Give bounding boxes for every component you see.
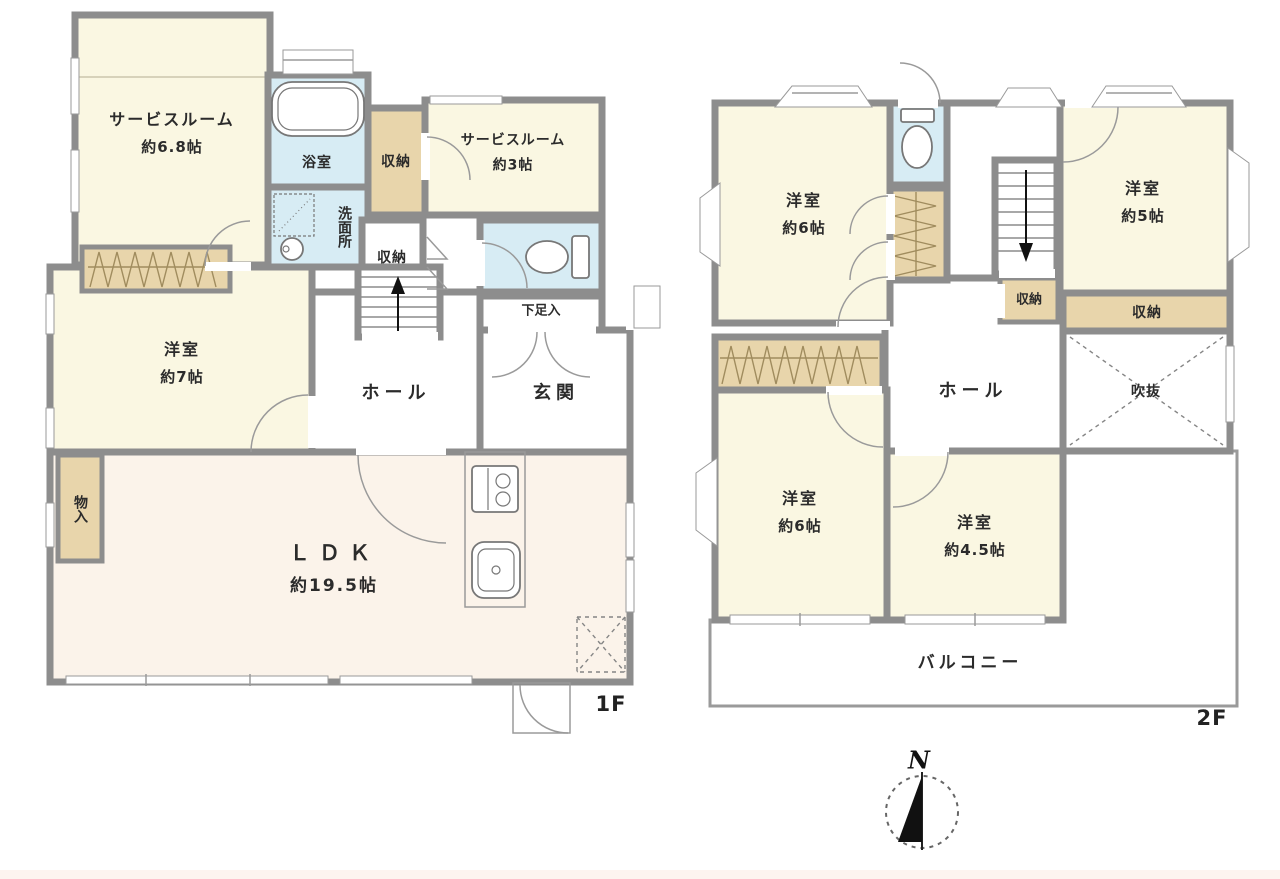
room-void — [1063, 331, 1230, 451]
stove-icon — [472, 466, 518, 512]
floor2-plan — [696, 63, 1249, 706]
toilet-icon-2f — [901, 109, 934, 168]
room-west6b — [715, 390, 887, 620]
room-west6a — [715, 103, 890, 323]
kitchen-sink-icon — [472, 542, 520, 598]
room-ldk — [50, 450, 630, 682]
washbasin-icon — [281, 238, 303, 260]
floor-plan-drawing — [0, 0, 1280, 879]
room-service68 — [75, 15, 270, 265]
room-west7 — [50, 267, 312, 452]
stairs-icon-2f — [995, 160, 1057, 274]
compass-icon — [886, 772, 958, 850]
compass-north-label: N — [908, 746, 930, 775]
back-door-porch — [513, 683, 570, 733]
floorplan-canvas: サービスルーム 約6.8帖 浴室 洗面所 収納 サービスルーム 約3帖 収納 下… — [0, 0, 1280, 879]
closet-2f-vertical — [890, 188, 947, 280]
room-entrance — [480, 330, 630, 452]
room-service3 — [425, 100, 602, 215]
room-west5 — [1060, 103, 1230, 293]
stairs-icon-1f — [358, 267, 440, 337]
floor-label-1f: 1F — [596, 692, 627, 716]
entrance-step — [634, 286, 660, 328]
floor-label-2f: 2F — [1197, 706, 1228, 730]
room-storage-d — [1063, 293, 1230, 331]
bath-window-bay — [283, 50, 353, 74]
bathtub-icon — [272, 82, 364, 136]
closet-west6b — [715, 337, 883, 390]
bottom-accent-strip — [0, 870, 1280, 879]
room-mono-ire — [58, 455, 102, 561]
room-storage-a — [368, 108, 425, 215]
floor1-plan — [46, 15, 660, 733]
room-west45 — [887, 451, 1063, 620]
room-shoe-cabinet — [480, 296, 602, 330]
room-storage-c — [1000, 278, 1058, 322]
